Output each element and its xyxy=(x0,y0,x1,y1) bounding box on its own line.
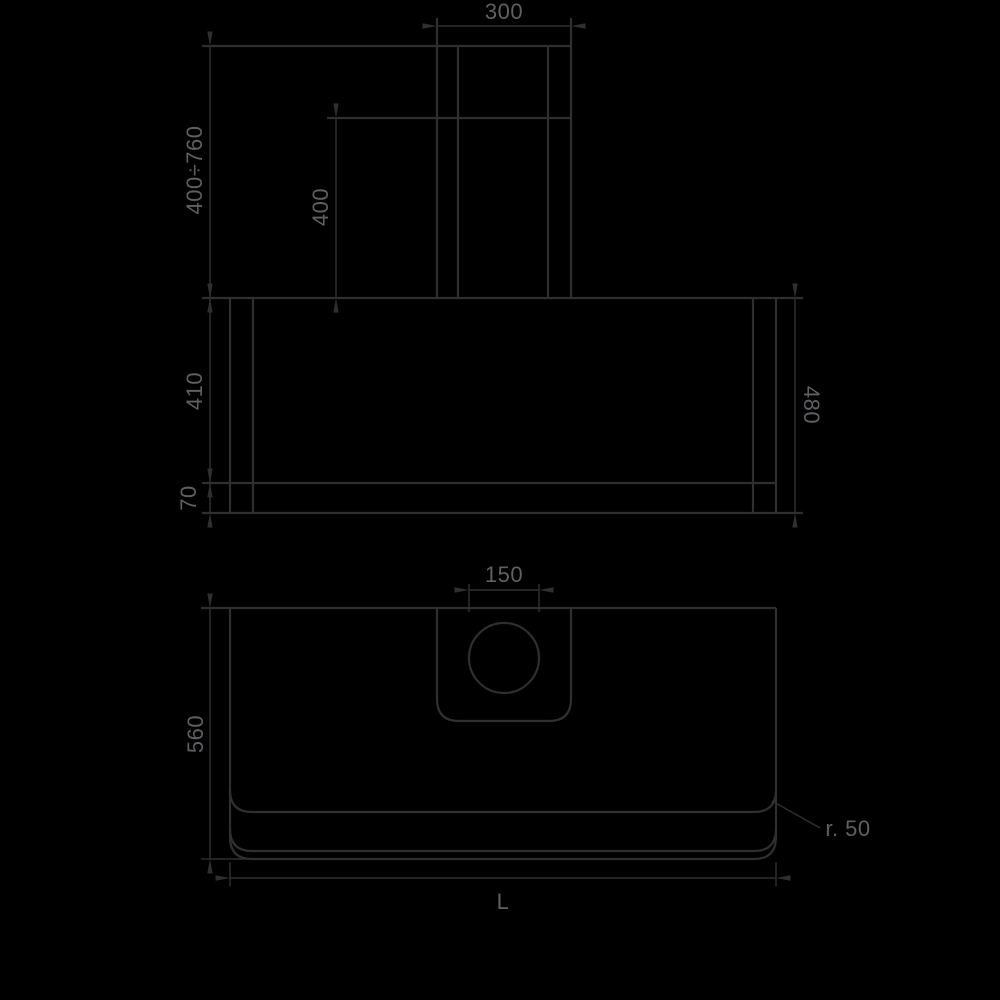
leader-line-corner-radius xyxy=(772,801,820,828)
dimension-label-body-height: 410 xyxy=(182,372,207,410)
hood-dimension-drawing: 300 400÷760 400 410 70 480 xyxy=(0,0,1000,1000)
plan-front-curve-inner-line xyxy=(230,829,776,851)
plan-view: 150 560 r. 50 L xyxy=(183,562,871,914)
chimney-outline xyxy=(202,18,571,298)
dimension-label-chimney-width: 300 xyxy=(485,0,523,24)
plan-outline xyxy=(201,608,776,859)
plan-front-curve-top-line xyxy=(230,790,776,812)
canopy-outline xyxy=(202,298,803,513)
dimension-label-length: L xyxy=(497,889,510,914)
dimension-label-outlet-diameter: 150 xyxy=(485,562,523,587)
plan-body-outline xyxy=(230,608,776,859)
front-elevation-view: 300 400÷760 400 410 70 480 xyxy=(176,0,824,513)
dimension-label-chimney-lower-height: 400 xyxy=(308,188,333,226)
dimension-label-depth: 560 xyxy=(183,715,208,753)
technical-drawing-page: 300 400÷760 400 410 70 480 xyxy=(0,0,1000,1000)
dimension-label-total-height: 480 xyxy=(799,386,824,424)
plan-chimney-recess xyxy=(437,608,571,721)
dimension-label-corner-radius: r. 50 xyxy=(825,816,870,841)
dimension-label-height-range: 400÷760 xyxy=(182,126,207,215)
dimension-label-band-height: 70 xyxy=(176,485,201,510)
plan-outlet-circle xyxy=(469,623,539,693)
